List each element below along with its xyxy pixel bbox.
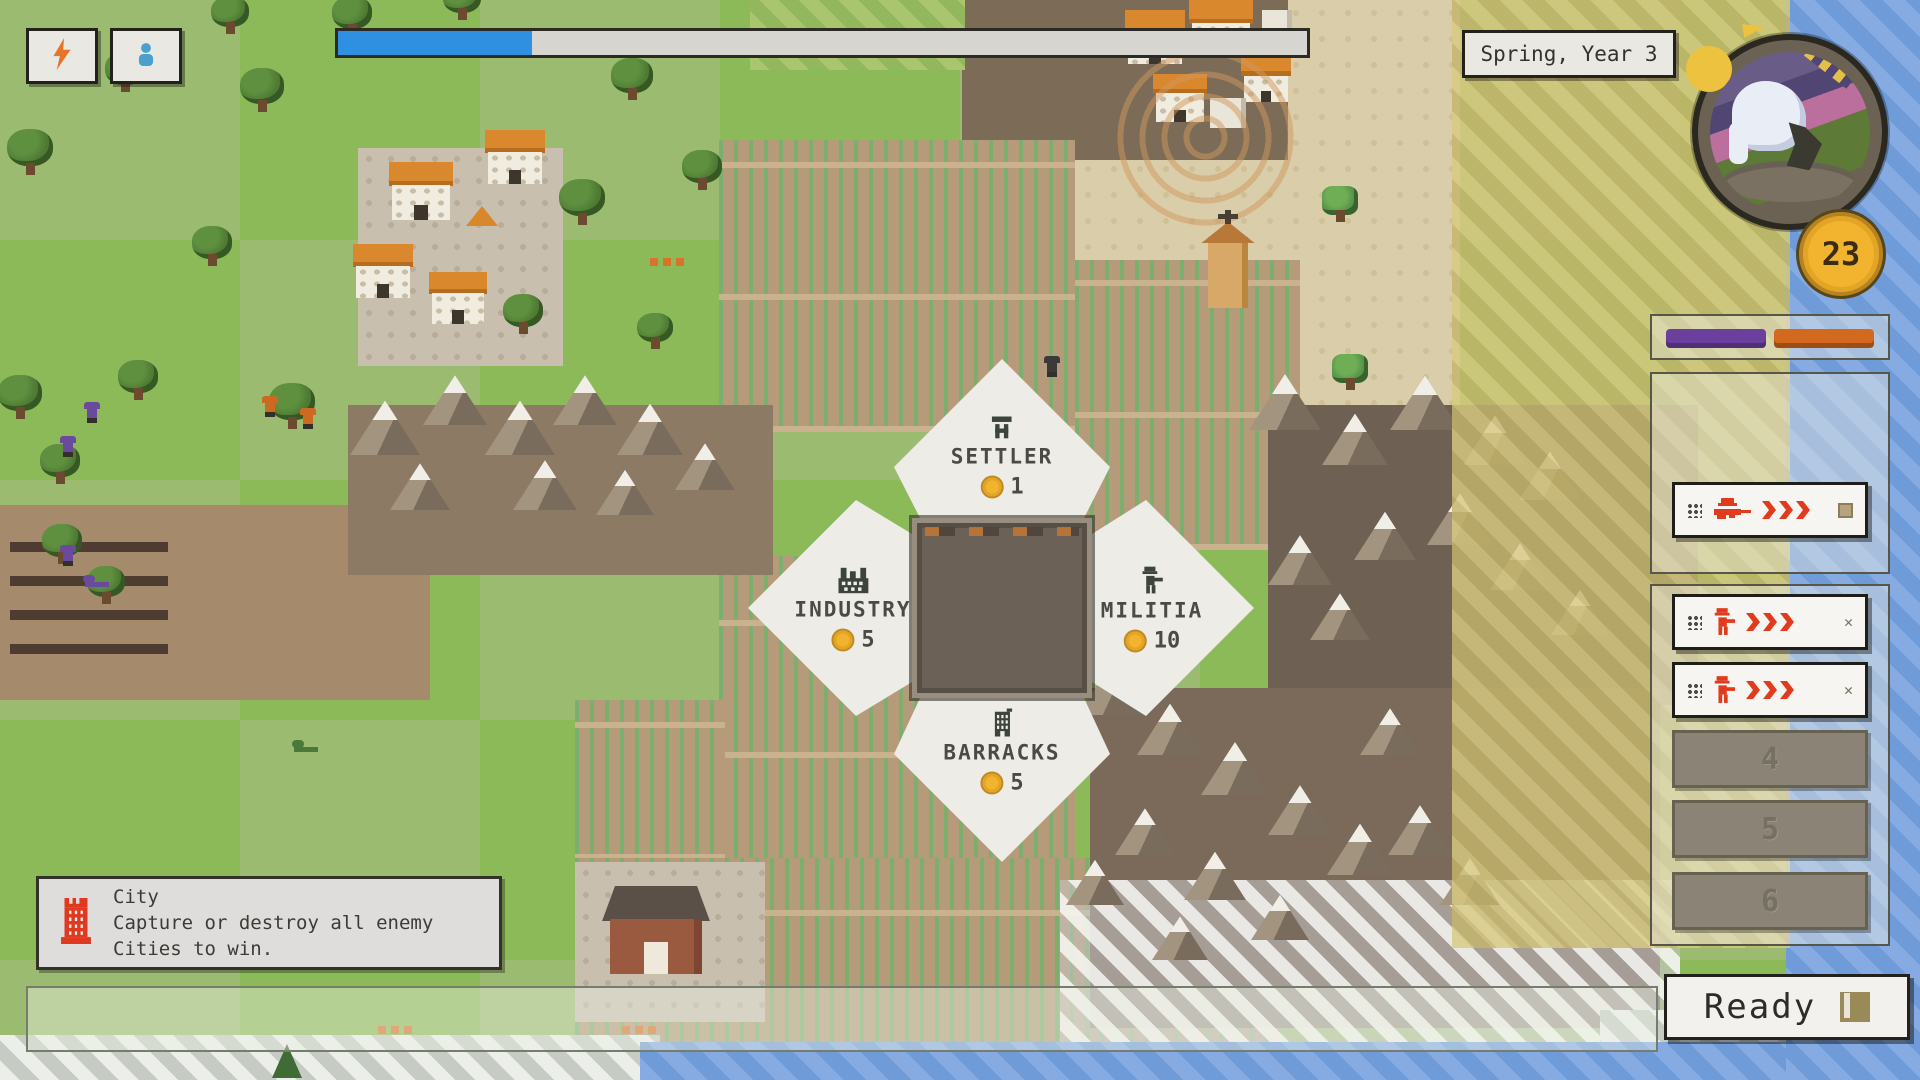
elephant-trunk (1729, 122, 1748, 164)
fast-forward-icon (1746, 613, 1794, 631)
remove-button[interactable]: ✕ (1844, 613, 1853, 631)
drag-handle-icon[interactable] (1687, 615, 1702, 630)
game-screen: SETTLER 1 INDUSTRY 5 MILITIA 10 BARRACKS… (0, 0, 1920, 1080)
units-button[interactable] (110, 28, 182, 84)
banner-stripes (1804, 52, 1857, 89)
turn-progress-bar (335, 28, 1310, 58)
orange-resource-bar (1774, 329, 1874, 348)
ready-button[interactable]: Ready (1664, 974, 1910, 1040)
queue-empty-slot: 4 (1672, 730, 1868, 788)
remove-button[interactable]: ✕ (1844, 681, 1853, 699)
soldier-unit-icon (1712, 607, 1736, 637)
tooltip-line1: Capture or destroy all enemy (113, 910, 433, 936)
lightning-icon (50, 38, 74, 74)
tooltip-title: City (113, 884, 433, 910)
drag-handle-icon[interactable] (1687, 503, 1702, 518)
season-label: Spring, Year 3 (1462, 30, 1676, 78)
queue-item[interactable]: ✕ (1672, 662, 1868, 718)
close-icon[interactable]: ✕ (1844, 681, 1853, 699)
city-rooftops (925, 527, 1079, 536)
person-icon (135, 42, 157, 70)
close-icon[interactable]: ✕ (1844, 613, 1853, 631)
queue-empty-slot: 5 (1672, 800, 1868, 858)
end-turn-icon (1840, 992, 1870, 1022)
queue-item[interactable] (1672, 482, 1868, 538)
tooltip-line2: Cities to win. (113, 936, 433, 962)
queue-item[interactable]: ✕ (1672, 594, 1868, 650)
rocks (1723, 161, 1857, 203)
city-icon (61, 898, 91, 948)
purple-resource-bar (1666, 329, 1766, 348)
portrait-scene (1710, 52, 1870, 212)
square-icon (1838, 503, 1853, 518)
resource-bars-panel (1650, 314, 1890, 360)
sniper-unit-icon (1712, 498, 1752, 522)
production-panel (1650, 372, 1890, 574)
selected-city-tile (912, 518, 1092, 698)
fast-forward-icon (1762, 501, 1810, 519)
soldier-unit-icon (1712, 675, 1736, 705)
faction-portrait[interactable] (1692, 34, 1888, 230)
fast-forward-icon (1746, 681, 1794, 699)
objective-tooltip: City Capture or destroy all enemy Cities… (36, 876, 502, 970)
drag-handle-icon[interactable] (1687, 683, 1702, 698)
bottom-bar (26, 986, 1658, 1052)
queue-empty-slot: 6 (1672, 872, 1868, 930)
ready-label: Ready (1704, 987, 1816, 1027)
quick-action-button[interactable] (26, 28, 98, 84)
progress-fill (338, 31, 532, 55)
coin-balance: 23 (1799, 212, 1883, 296)
hold-indicator (1838, 503, 1853, 518)
